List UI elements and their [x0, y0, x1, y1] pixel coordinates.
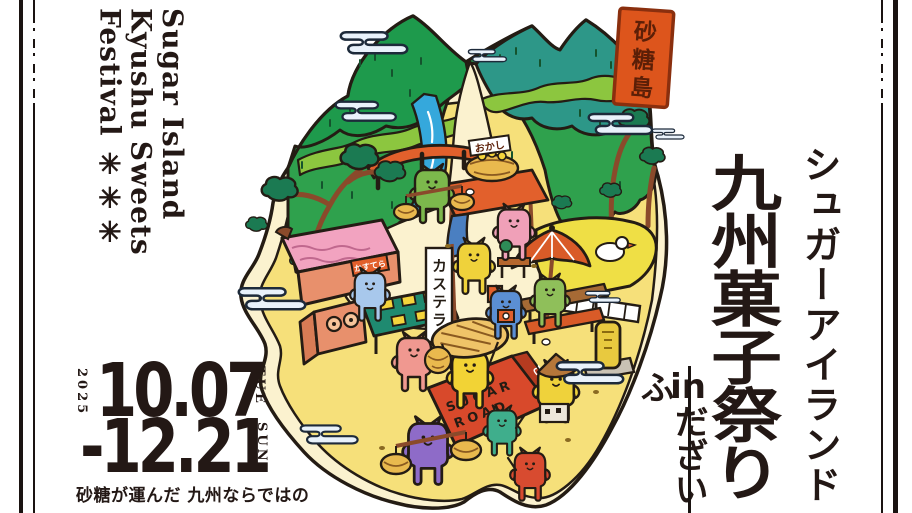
tagline: 砂糖が運んだ 九州ならではの	[76, 481, 309, 506]
castella-table	[362, 288, 458, 354]
pine-trees-right	[552, 109, 665, 245]
mountain-band-left	[298, 114, 468, 175]
road	[341, 62, 540, 329]
stall-sign: おかし	[474, 139, 505, 155]
bread-lifter-arms	[442, 342, 498, 372]
red-waving-character	[508, 448, 550, 501]
date-start-day: TUE	[252, 366, 267, 406]
sugar-road-line1: SUGAR	[444, 377, 516, 415]
green-sitting-character	[530, 274, 570, 327]
castella-banner: カステラ	[426, 244, 456, 352]
main-title-japanese: 九州菓子祭り	[705, 152, 776, 500]
blue-camera-character	[486, 286, 526, 339]
awning	[546, 292, 640, 322]
duck-icon	[596, 237, 635, 261]
giant-bread	[430, 315, 510, 361]
orange-bench	[525, 308, 604, 344]
yellow-bag-character	[453, 238, 502, 302]
date-end-day: SUN	[254, 422, 269, 464]
straw-hat-character	[533, 354, 579, 422]
bridge	[368, 145, 482, 188]
purple-carrier-character	[381, 417, 481, 485]
castella-banner-text: カステラ	[430, 258, 448, 330]
mountain-teal	[476, 20, 651, 135]
sugar-road-side-label: さとう	[530, 362, 560, 396]
poster: { "left_title": { "line1": "Sugar Island…	[0, 0, 912, 513]
left-title-line1: Sugar Island	[157, 8, 188, 256]
island-beach	[241, 16, 667, 508]
river	[402, 94, 447, 220]
frame-line-right-inner	[881, 0, 883, 513]
sugar-island-flag: 砂 糖 島	[613, 8, 674, 108]
clouds	[239, 32, 684, 443]
sweets-stall: おかし	[440, 135, 548, 258]
mountain-band-right	[480, 76, 645, 112]
orange-kiosk	[300, 300, 366, 364]
salmon-basket-character	[392, 332, 451, 391]
mountain-base	[288, 16, 655, 273]
pine-trees-left	[246, 144, 406, 286]
teal-waving-character	[483, 405, 524, 455]
stone-monument	[584, 322, 634, 380]
castella-shop-sign: かすてら	[353, 259, 386, 273]
subtitle-japanese: シュガーアイランド	[800, 145, 838, 505]
left-title-line3: Festival ✳✳✳	[94, 8, 125, 256]
date-end: -12.21	[80, 412, 268, 482]
bread-lifter-character	[447, 346, 493, 408]
left-title-line2: Kyushu Sweets	[125, 8, 156, 256]
left-title-block: Sugar Island Kyushu Sweets Festival ✳✳✳	[94, 8, 188, 256]
frame-line-right-outer	[893, 0, 898, 513]
duck-building	[536, 218, 656, 322]
brown-bench	[520, 284, 608, 322]
blue-noren	[447, 214, 470, 258]
blue-standing-character	[350, 268, 390, 321]
parasol	[512, 225, 590, 330]
sugar-road-carpet: SUGAR ROAD さとう	[428, 352, 560, 446]
frame-line-left-outer	[19, 0, 23, 513]
pink-bunny-character	[493, 204, 535, 278]
frame-line-left-inner	[33, 0, 35, 513]
island-sand	[260, 100, 657, 501]
mountain-stipple	[302, 48, 640, 208]
castella-shop: かすてら	[276, 220, 400, 305]
mountain-dark	[288, 16, 470, 168]
flag-char-2: 糖	[631, 46, 656, 75]
green-carrier-character	[394, 164, 474, 223]
sugar-road-line2: ROAD	[452, 398, 511, 432]
flag-char-1: 砂	[633, 19, 658, 47]
pebbles	[379, 189, 599, 450]
flag-char-3: 島	[629, 74, 654, 103]
location-text: inだざいふ	[637, 370, 705, 513]
location-divider-line	[688, 366, 691, 513]
